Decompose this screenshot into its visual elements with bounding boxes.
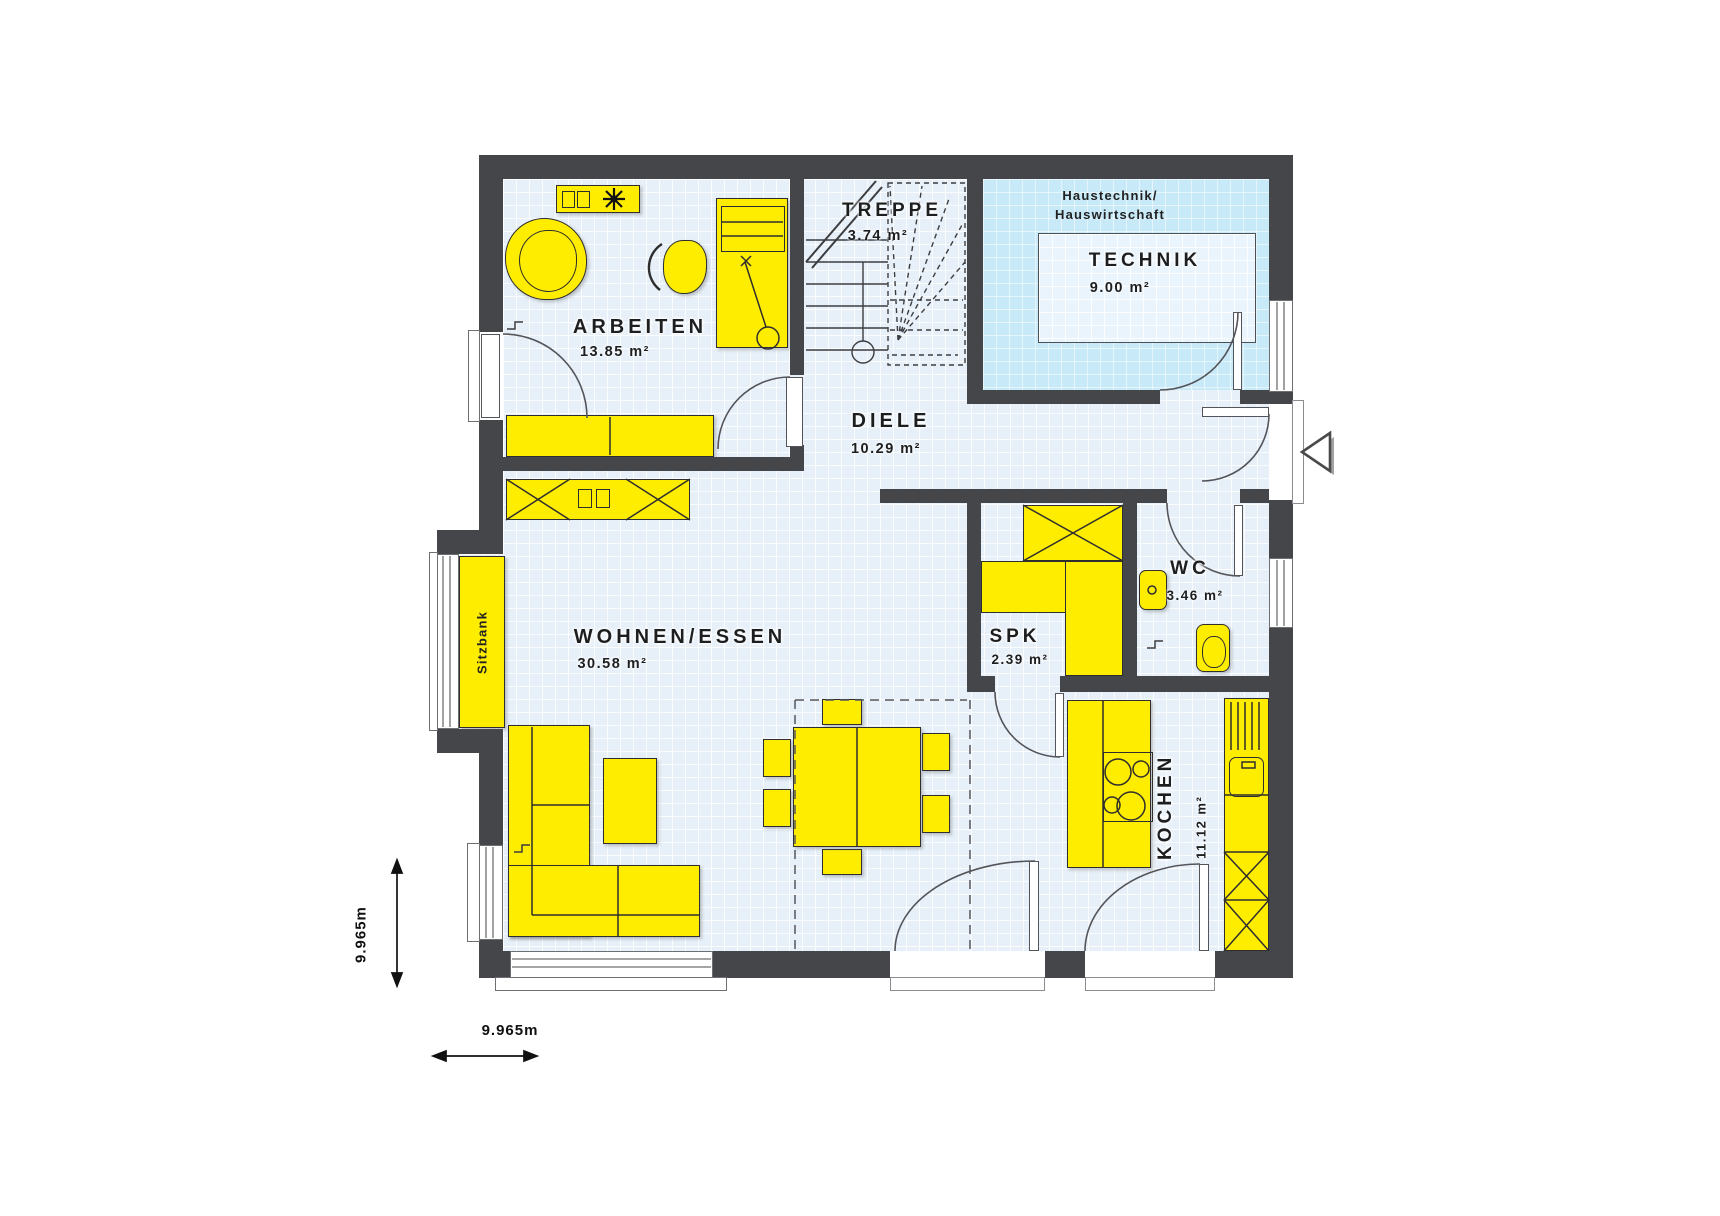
room-label-wc: WC [1150,558,1230,580]
room-label-kochen: KOCHEN [1152,742,1180,872]
room-area-kochen: 11.12 m² [1190,780,1212,875]
technik-zone-line2: Hauswirtschaft [1010,207,1210,222]
room-area-treppe: 3.74 m² [818,228,938,244]
entrance-arrow-icon [1302,433,1334,475]
room-label-diele: DIELE [826,410,956,433]
cabinet-x-marks [506,479,1269,951]
plant-icon [603,188,625,210]
technik-zone-line1: Haustechnik/ [1010,188,1210,203]
room-area-technik: 9.00 m² [1065,280,1175,296]
zone-dashed-lines [795,700,970,949]
room-label-arbeiten: ARBEITEN [560,316,720,339]
room-label-wohnen-essen: WOHNEN/ESSEN [565,626,795,649]
wall-jog-symbols [507,322,1163,852]
dimension-width-label: 9.965m [455,1022,565,1039]
room-area-wohnen-essen: 30.58 m² [555,656,670,672]
room-area-arbeiten: 13.85 m² [560,344,670,360]
room-label-technik: TECHNIK [1065,250,1225,272]
room-area-wc: 3.46 m² [1145,588,1245,603]
floorplan-canvas: ARBEITEN 13.85 m² TREPPE 3.74 m² Haustec… [0,0,1720,1216]
dimension-height-label: 9.965m [348,875,374,995]
room-label-treppe: TREPPE [812,200,972,222]
room-area-diele: 10.29 m² [826,441,946,457]
room-area-spk: 2.39 m² [960,652,1080,667]
bench-label: Sitzbank [464,572,500,712]
office-chair-back [649,244,662,290]
plan-linework [0,0,1720,1216]
room-label-spk: SPK [960,626,1070,648]
